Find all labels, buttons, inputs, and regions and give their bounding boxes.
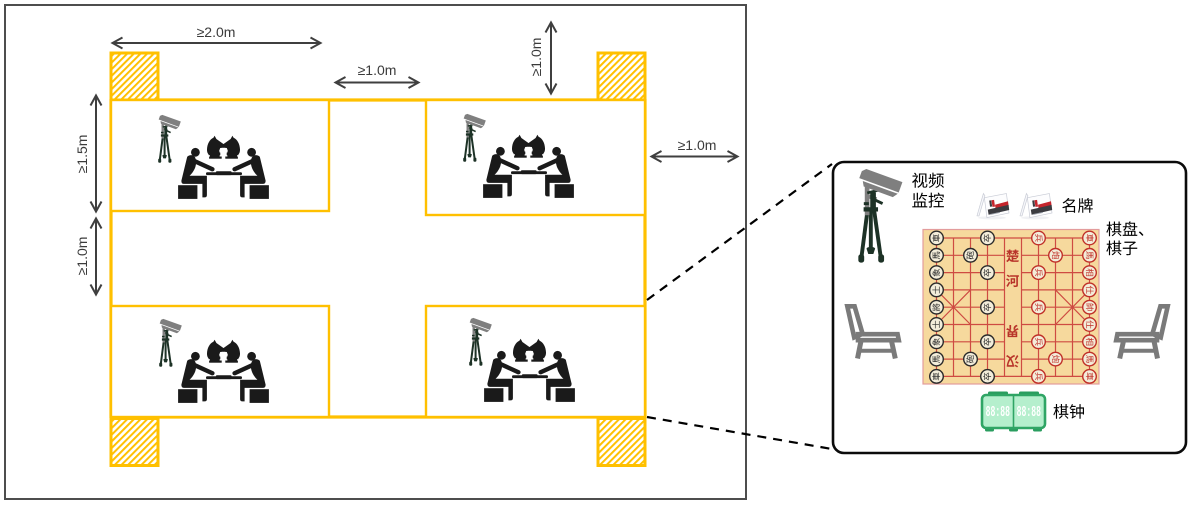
svg-text:88:88: 88:88 (1017, 404, 1041, 421)
svg-text:≥1.0m: ≥1.0m (358, 62, 397, 78)
svg-text:≥1.5m: ≥1.5m (74, 135, 90, 174)
svg-text:≥1.0m: ≥1.0m (74, 237, 90, 276)
svg-text:≥1.0m: ≥1.0m (528, 38, 544, 77)
svg-text:88:88: 88:88 (986, 404, 1010, 421)
svg-text:≥1.0m: ≥1.0m (678, 137, 717, 153)
svg-text:≥2.0m: ≥2.0m (197, 24, 236, 40)
